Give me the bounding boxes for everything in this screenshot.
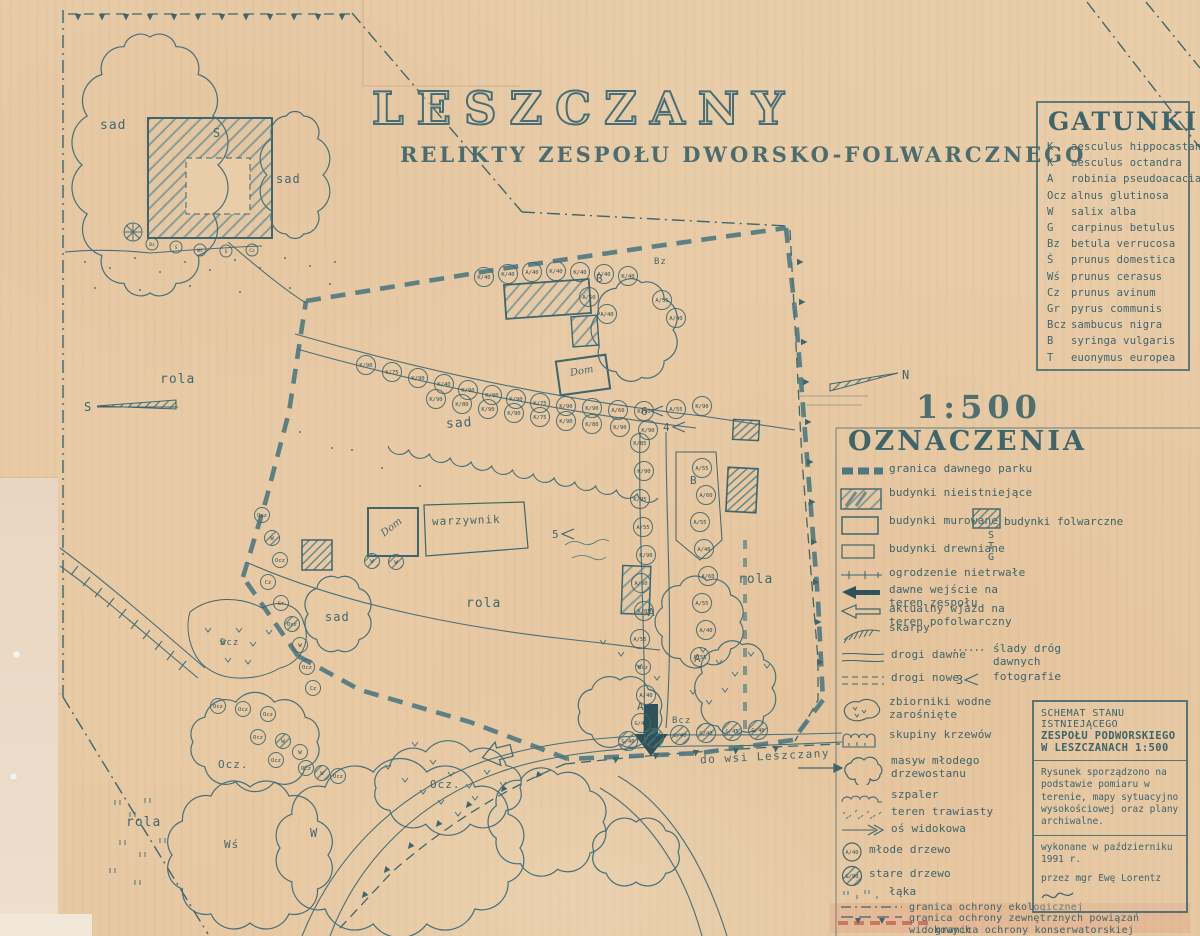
species-name: prunus cerasus xyxy=(1071,271,1162,283)
title-block-made1: wykonane w październiku 1991 r. xyxy=(1041,842,1179,867)
svg-text:Bz: Bz xyxy=(149,242,155,248)
tree-circle: K/90 xyxy=(505,404,524,423)
map-label: S xyxy=(213,126,221,140)
legend-row-view-axis: oś widokowa xyxy=(840,823,966,837)
boundary-triangle xyxy=(267,14,273,21)
meadow-mark xyxy=(115,800,120,805)
legend-row-photos: 3 fotografie xyxy=(952,671,1061,687)
svg-text:A/40: A/40 xyxy=(697,547,710,553)
svg-text:K/90: K/90 xyxy=(585,406,598,412)
slope-tick xyxy=(179,661,186,670)
boundary-triangle xyxy=(219,14,225,21)
svg-text:K/90: K/90 xyxy=(613,425,626,431)
slope-tick xyxy=(71,566,78,575)
tree-circle: K/40 xyxy=(619,267,638,286)
svg-text:Cz: Cz xyxy=(310,686,317,692)
species-code: Cz xyxy=(1047,287,1071,299)
tree-cloud xyxy=(276,758,524,936)
legend-row-nonexistent-buildings: budynki nieistniejące xyxy=(840,487,1032,511)
photo-mark: 4 xyxy=(663,421,685,434)
legend-row-tree-massif: masyw młodego drzewostanu xyxy=(840,755,1041,785)
punch-hole xyxy=(9,772,18,781)
boundary-triangle xyxy=(805,419,812,425)
svg-text:K/40: K/40 xyxy=(477,275,490,281)
title-block-line4: W LESZCZANACH 1:500 xyxy=(1041,742,1179,754)
tree-cloud xyxy=(488,768,606,876)
field-dot xyxy=(351,449,353,451)
svg-text:Ocz: Ocz xyxy=(275,558,285,564)
svg-text:Gr: Gr xyxy=(278,601,285,607)
boundary-triangle xyxy=(291,14,297,21)
svg-text:G/45: G/45 xyxy=(634,721,647,727)
tree-circle: A/55 xyxy=(631,630,650,649)
tree-circle: A/60 xyxy=(697,486,716,505)
tree-circle: Ś xyxy=(220,245,232,257)
north-arrow xyxy=(800,373,898,405)
svg-text:G/40: G/40 xyxy=(751,728,764,734)
map-label: rola xyxy=(160,372,195,387)
tree-circle: Ocz xyxy=(261,707,276,722)
map-label: rola xyxy=(466,596,501,611)
boundary-triangle xyxy=(801,339,808,345)
scrub-mark xyxy=(205,628,211,632)
tree-circle: A/60 xyxy=(609,401,628,420)
legend-row-grassland: teren trawiasty xyxy=(840,806,993,820)
species-name: betula verrucosa xyxy=(1071,238,1175,250)
farm-building-e1 xyxy=(726,467,758,513)
conifer-mark xyxy=(124,223,142,241)
svg-text:A/60: A/60 xyxy=(701,574,714,580)
shrub-groups-symbol xyxy=(840,729,884,751)
svg-text:K/90: K/90 xyxy=(509,397,522,403)
species-row: Bsyringa vulgaris xyxy=(1047,335,1175,347)
field-dot xyxy=(329,283,331,285)
boundary-triangle xyxy=(807,459,814,465)
former-entrance-symbol xyxy=(840,584,884,600)
tree-circle: W xyxy=(293,745,308,760)
svg-text:A/50: A/50 xyxy=(582,295,595,301)
svg-text:K/90: K/90 xyxy=(429,397,442,403)
meadow-mark xyxy=(135,880,140,885)
tree-cloud xyxy=(695,641,776,735)
tree-circle: A/55 xyxy=(653,291,672,310)
svg-text:A/55: A/55 xyxy=(669,407,682,413)
svg-text:K/95: K/95 xyxy=(633,497,646,503)
species-code: Gr xyxy=(1047,303,1071,315)
visual-boundary-symbol xyxy=(840,913,904,925)
tree-circle: Ocz xyxy=(285,617,300,632)
title-block-line2: ISTNIEJĄCEGO xyxy=(1041,719,1179,730)
scrub-mark xyxy=(484,770,490,774)
tree-circle: K/75 xyxy=(531,408,550,427)
svg-text:3: 3 xyxy=(956,673,963,687)
title-block-line3: ZESPOŁU PODWORSKIEGO xyxy=(1041,730,1179,742)
farm-building-mid xyxy=(302,540,332,570)
legend-row-ponds: zbiorniki wodne zarośnięte xyxy=(840,696,1039,726)
park-boundary-symbol xyxy=(840,463,884,479)
field-dot xyxy=(84,261,86,263)
boundary-triangle xyxy=(433,820,442,829)
boundary-triangle xyxy=(463,801,472,810)
legend-row-road-traces: ślady dróg dawnych xyxy=(952,643,1093,668)
fence-symbol xyxy=(840,567,884,581)
svg-text:A/40: A/40 xyxy=(669,316,682,322)
tree-circle: Cz xyxy=(306,681,321,696)
svg-text:K/85: K/85 xyxy=(633,441,646,447)
species-name: pyrus communis xyxy=(1071,303,1162,315)
svg-text:K/90: K/90 xyxy=(411,376,424,382)
tree-circle: W xyxy=(315,766,330,781)
tree-circle: Ocz xyxy=(269,753,284,768)
punch-hole xyxy=(12,650,21,659)
species-name: alnus glutinosa xyxy=(1071,190,1169,202)
tree-circle: A/55 xyxy=(693,594,712,613)
slopes-symbol xyxy=(840,622,884,646)
tree-circle: A/40 xyxy=(695,540,714,559)
tree-circle: Ocz xyxy=(251,730,266,745)
tree-circle: K/90 xyxy=(557,412,576,431)
young-tree-symbol: A/40 xyxy=(840,840,864,864)
nonexistent-building-symbol xyxy=(840,487,884,511)
meadow-mark xyxy=(160,838,165,843)
svg-text:K/40: K/40 xyxy=(621,274,634,280)
svg-text:A/60: A/60 xyxy=(611,408,624,414)
legend-row-slopes: skarpy xyxy=(840,622,930,646)
species-code: Ocz xyxy=(1047,190,1071,202)
svg-text:A/55: A/55 xyxy=(693,520,706,526)
scrub-mark xyxy=(500,782,506,786)
tree-massif-symbol xyxy=(840,755,886,785)
legend-row-fence: ogrodzenie nietrwałe xyxy=(840,567,1025,581)
species-panel: GATUNKI Kaesculus hippocastaniKaesculus … xyxy=(1036,101,1190,371)
tree-circle: Bz xyxy=(146,238,158,250)
boundary-triangle xyxy=(99,14,105,21)
map-label: rola xyxy=(738,572,773,587)
title-block-made2: przez mgr Ewę Lorentz xyxy=(1041,873,1161,884)
species-row: Grpyrus communis xyxy=(1047,303,1162,315)
svg-text:A/60: A/60 xyxy=(634,581,647,587)
svg-text:Bcz: Bcz xyxy=(638,665,648,671)
masonry-building-symbol xyxy=(840,515,884,537)
map-label: rola xyxy=(126,815,161,830)
svg-text:W: W xyxy=(298,643,302,649)
orchard-scallop xyxy=(388,446,658,502)
svg-text:4: 4 xyxy=(663,421,670,434)
scrub-mark xyxy=(732,672,738,676)
scale-label: 1:500 xyxy=(916,388,1042,426)
slope-tick xyxy=(83,577,90,586)
site-plan-sheet: 564 K/40K/40A/40K/40K/40A/40K/40A/55A/40… xyxy=(0,0,1200,936)
svg-text:Ocz: Ocz xyxy=(302,665,312,671)
photo-symbol: 3 xyxy=(952,671,988,687)
map-label: Ocz. xyxy=(218,758,249,771)
new-roads-symbol xyxy=(840,672,886,690)
species-name: euonymus europea xyxy=(1071,352,1175,364)
species-row: Wśprunus cerasus xyxy=(1047,271,1162,283)
svg-text:K/75: K/75 xyxy=(385,370,398,376)
svg-text:K/75: K/75 xyxy=(533,415,546,421)
species-name: aesculus hippocastani xyxy=(1071,141,1200,153)
field-dot xyxy=(184,261,186,263)
tree-circle: A/40 xyxy=(697,621,716,640)
boundary-triangle xyxy=(123,14,129,21)
svg-text:A/55: A/55 xyxy=(695,601,708,607)
svg-text:K/90: K/90 xyxy=(641,428,654,434)
species-name: syringa vulgaris xyxy=(1071,335,1175,347)
tree-circle: Ocz xyxy=(273,553,288,568)
boundary-triangle xyxy=(797,259,804,265)
species-row: Teuonymus europea xyxy=(1047,352,1175,364)
svg-text:K/80: K/80 xyxy=(455,402,468,408)
scrub-mark xyxy=(764,664,770,668)
map-label: Ocz. xyxy=(430,778,461,791)
field-dot xyxy=(139,289,141,291)
field-dot xyxy=(109,267,111,269)
species-name: salix alba xyxy=(1071,206,1136,218)
svg-text:Ocz: Ocz xyxy=(263,712,273,718)
map-label: Bz xyxy=(654,257,667,267)
svg-text:A/55: A/55 xyxy=(633,637,646,643)
map-label: sad xyxy=(276,172,301,186)
legend-row-conservation-boundary: granica ochrony konserwatorskiej xyxy=(935,925,1134,936)
svg-text:Ocz: Ocz xyxy=(333,774,343,780)
species-row: Bczsambucus nigra xyxy=(1047,319,1162,331)
species-code: G xyxy=(1047,222,1071,234)
svg-text:Ś: Ś xyxy=(175,244,178,251)
signature-squiggle xyxy=(1041,888,1075,904)
tree-circle: A/55 xyxy=(634,518,653,537)
scan-edge-strip xyxy=(0,478,58,936)
legend-row-wooden-buildings: budynki drewniane xyxy=(840,543,1005,561)
map-label: W xyxy=(310,826,318,840)
tree-circle: K/90 xyxy=(507,390,526,409)
legend-row-new-roads: drogi nowe xyxy=(840,672,959,690)
legend-row-tree-row: szpaler xyxy=(840,789,939,805)
svg-text:G/45: G/45 xyxy=(647,736,660,742)
svg-text:Wś: Wś xyxy=(197,247,203,254)
svg-text:G/45: G/45 xyxy=(725,729,738,735)
farm-building-symbol xyxy=(972,508,1002,530)
scrub-mark xyxy=(722,688,728,692)
svg-text:A/60: A/60 xyxy=(699,493,712,499)
tree-circle: G/40 xyxy=(671,726,690,745)
species-code: T xyxy=(1047,352,1071,364)
svg-text:Ocz: Ocz xyxy=(271,758,281,764)
tree-circle: K/90 xyxy=(611,418,630,437)
road-traces-symbol xyxy=(952,643,988,655)
scrub-mark xyxy=(472,796,478,800)
species-name: robinia pseudoacacia xyxy=(1071,173,1200,185)
svg-text:Ocz: Ocz xyxy=(238,707,248,713)
meadow-mark xyxy=(110,868,115,873)
slope-tick xyxy=(143,630,150,639)
farm-building-e2 xyxy=(732,419,759,440)
legend-row-shrub-groups: skupiny krzewów xyxy=(840,729,991,751)
tree-circle: A/60 xyxy=(699,567,718,586)
species-code: B xyxy=(1047,335,1071,347)
boundary-triangle xyxy=(75,14,81,21)
tree-circle: Ocz xyxy=(299,761,314,776)
field-dot xyxy=(309,265,311,267)
scrub-mark xyxy=(412,742,418,746)
svg-text:Ocz: Ocz xyxy=(257,513,267,519)
svg-text:A/55: A/55 xyxy=(636,525,649,531)
tree-cloud xyxy=(591,279,677,382)
species-code: Bz xyxy=(1047,238,1071,250)
field-dot xyxy=(284,257,286,259)
svg-text:G/90: G/90 xyxy=(845,874,858,880)
north-label: N xyxy=(902,368,909,382)
tree-circle: A/55 xyxy=(691,513,710,532)
map-label: sad xyxy=(100,118,126,133)
scrub-mark xyxy=(402,778,408,782)
field-dot xyxy=(381,467,383,469)
svg-text:K/90: K/90 xyxy=(461,388,474,394)
tree-circle: K/40 xyxy=(435,375,454,394)
svg-text:A/40: A/40 xyxy=(639,693,652,699)
farm-letter-s: S xyxy=(988,530,994,541)
species-row: Kaesculus octandra xyxy=(1047,157,1182,169)
field-dot xyxy=(234,259,236,261)
field-dot xyxy=(334,261,336,263)
boundary-triangle xyxy=(612,757,619,764)
svg-text:K/90: K/90 xyxy=(695,404,708,410)
scan-corner xyxy=(0,914,92,936)
scrub-mark xyxy=(266,630,272,634)
buildings xyxy=(148,118,760,678)
meadow-mark xyxy=(120,840,125,845)
svg-text:K/90: K/90 xyxy=(637,409,650,415)
tree-circle: K/90 xyxy=(635,462,654,481)
field-dot xyxy=(259,267,261,269)
scrub-mark xyxy=(654,676,660,680)
svg-text:K/90: K/90 xyxy=(559,419,572,425)
boundary-triangle xyxy=(803,379,810,385)
legend-title: OZNACZENIA xyxy=(848,426,1087,457)
map-label: Bcz xyxy=(220,638,239,648)
svg-text:G/40: G/40 xyxy=(673,733,686,739)
svg-text:Ocz: Ocz xyxy=(213,704,223,710)
svg-text:K/90: K/90 xyxy=(507,411,520,417)
svg-text:K/90: K/90 xyxy=(639,553,652,559)
shrub-region-sw xyxy=(188,599,306,678)
tree-circle: A/40 xyxy=(598,305,617,324)
species-code: K xyxy=(1047,157,1071,169)
tree-circle: K/80 xyxy=(483,386,502,405)
scrub-mark xyxy=(618,652,624,656)
tree-circle: W xyxy=(365,554,380,569)
scrub-mark xyxy=(245,660,251,664)
species-code: Wś xyxy=(1047,271,1071,283)
map-label: A xyxy=(648,606,656,619)
scrub-mark xyxy=(250,642,256,646)
title-block: SCHEMAT STANU ISTNIEJĄCEGO ZESPOŁU PODWO… xyxy=(1032,700,1188,913)
meadow-mark xyxy=(145,798,150,803)
species-code: A xyxy=(1047,173,1071,185)
svg-text:A/40: A/40 xyxy=(699,628,712,634)
courtyard-nw xyxy=(186,158,250,214)
field-dot xyxy=(289,287,291,289)
species-code: W xyxy=(1047,206,1071,218)
field-dot xyxy=(299,431,301,433)
tree-circle: W xyxy=(265,531,280,546)
map-label: B xyxy=(690,474,698,487)
svg-text:K/90: K/90 xyxy=(481,407,494,413)
svg-text:A/40: A/40 xyxy=(845,850,858,856)
legend-row-park-boundary: granica dawnego parku xyxy=(840,463,1032,479)
photo-mark: 5 xyxy=(552,528,574,541)
species-row: Śprunus domestica xyxy=(1047,254,1175,266)
old-tree-symbol: G/90 xyxy=(840,864,864,888)
species-name: aesculus octandra xyxy=(1071,157,1182,169)
tree-circle: G/40 xyxy=(619,732,638,751)
tree-circle: Gr xyxy=(274,596,289,611)
ruin-building-e xyxy=(621,566,651,615)
tree-circle: K/90 xyxy=(637,546,656,565)
tree-circles: K/40K/40A/40K/40K/40A/40K/40A/55A/40A/50… xyxy=(146,238,768,784)
tree-circle: G/40 xyxy=(749,721,768,740)
garden-plot-warzywnik xyxy=(424,502,528,556)
species-name: prunus avinum xyxy=(1071,287,1156,299)
field-dot xyxy=(134,257,136,259)
species-row: Bzbetula verrucosa xyxy=(1047,238,1175,250)
field-dot xyxy=(94,287,96,289)
legend-row-old-roads: drogi dawne xyxy=(840,649,966,667)
map-label: sad xyxy=(446,415,473,432)
svg-text:Ocz: Ocz xyxy=(287,622,297,628)
svg-text:G/40: G/40 xyxy=(699,731,712,737)
map-label: Bcz xyxy=(672,716,691,726)
boundary-triangle xyxy=(339,14,345,21)
svg-text:K/90: K/90 xyxy=(559,404,572,410)
species-row: Oczalnus glutinosa xyxy=(1047,190,1169,202)
tree-circle: K/90 xyxy=(479,400,498,419)
meadow-mark xyxy=(140,852,145,857)
scrub-mark xyxy=(225,658,231,662)
tree-circle: W xyxy=(276,734,291,749)
svg-text:A/40: A/40 xyxy=(600,312,613,318)
slope-tick xyxy=(131,620,138,629)
tree-circle: K/90 xyxy=(693,397,712,416)
svg-text:Ocz: Ocz xyxy=(253,735,263,741)
boundary-triangle xyxy=(799,299,806,305)
species-row: Gcarpinus betulus xyxy=(1047,222,1175,234)
map-label: warzywnik xyxy=(432,513,501,528)
map-label: sad xyxy=(325,610,350,624)
species-panel-title: GATUNKI xyxy=(1048,107,1198,136)
tree-circle: K/90 xyxy=(427,390,446,409)
south-pointer xyxy=(97,400,178,409)
current-entry-symbol xyxy=(840,603,884,619)
tree-circle: K/90 xyxy=(557,397,576,416)
species-row: Kaesculus hippocastani xyxy=(1047,141,1200,153)
svg-text:Ś: Ś xyxy=(225,248,228,255)
field-dot xyxy=(209,269,211,271)
boundary-triangle xyxy=(147,14,153,21)
field-dot xyxy=(189,285,191,287)
species-name: sambucus nigra xyxy=(1071,319,1162,331)
ruin-building-center xyxy=(504,279,591,319)
boundary-triangle xyxy=(815,619,822,625)
species-code: Ś xyxy=(1047,254,1071,266)
svg-text:A/40: A/40 xyxy=(525,270,538,276)
svg-text:K/90: K/90 xyxy=(359,363,372,369)
tree-circle: G/40 xyxy=(697,724,716,743)
ponds-symbol xyxy=(840,696,884,726)
tree-circle: W xyxy=(389,555,404,570)
species-row: Czprunus avinum xyxy=(1047,287,1156,299)
tree-circle: K/40 xyxy=(547,262,566,281)
